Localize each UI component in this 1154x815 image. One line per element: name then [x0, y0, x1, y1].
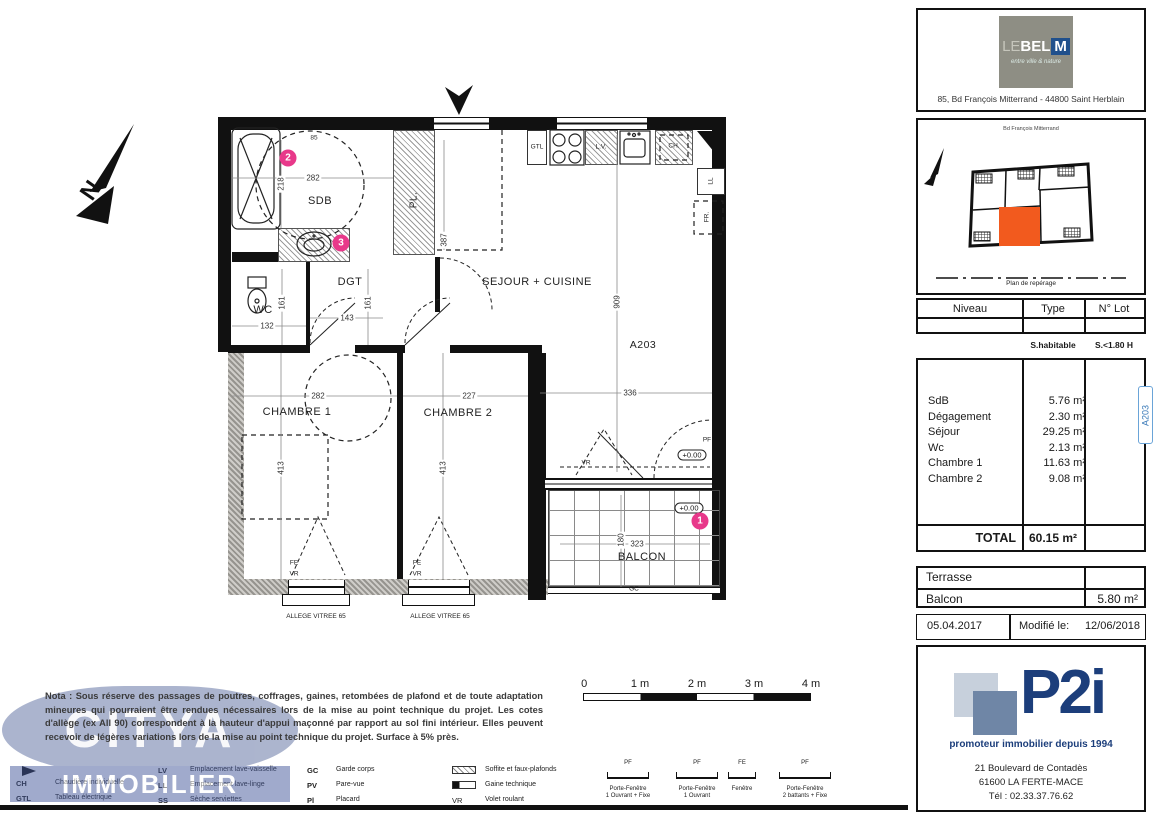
- scale-tick: 4 m: [802, 678, 820, 690]
- p2i-phone: Tél : 02.33.37.76.62: [918, 791, 1144, 802]
- soffit-hatch-icon: [452, 766, 476, 774]
- legend-label: Gaine technique: [485, 781, 536, 788]
- table-divider: [918, 588, 1144, 590]
- exterior-name: Terrasse: [926, 570, 972, 584]
- date-modified-label: Modifié le:: [1019, 620, 1069, 632]
- scale-tick: 1 m: [631, 678, 649, 690]
- washer-label: LL: [708, 177, 715, 184]
- pf-label: PF: [703, 437, 711, 444]
- legend-label: Chaudière individuelle: [55, 779, 124, 786]
- dimension-label: 282: [309, 392, 326, 401]
- p2i-address2: 61600 LA FERTE-MACE: [918, 777, 1144, 788]
- door-swings: [292, 258, 712, 575]
- siteplan-drawing: [918, 120, 1144, 293]
- legend-label: Placard: [336, 796, 360, 803]
- window-type-name: Porte-Fenêtre: [786, 786, 823, 793]
- closet-label-pl: PL.: [409, 192, 420, 209]
- entrance-arrow-icon: [441, 83, 477, 117]
- dishwasher-label: L.V.: [596, 144, 607, 151]
- legend-label: Volet roulant: [485, 796, 524, 803]
- surface-row: SdB5.76 m²: [928, 394, 1086, 410]
- duct-icon: [452, 781, 476, 789]
- legend-abbr: GC: [307, 766, 318, 775]
- room-label-chambre2: CHAMBRE 2: [424, 407, 493, 419]
- window-type-detail: 1 Ouvrant: [684, 793, 710, 800]
- surface-row: Chambre 29.08 m²: [928, 472, 1086, 488]
- siteplan-caption: Plan de repérage: [918, 280, 1144, 287]
- floor-plan: SDB WC DGT SEJOUR + CUISINE CHAMBRE 1 CH…: [218, 117, 726, 609]
- legend-abbr: CH: [16, 779, 27, 788]
- scale-bar-ruler: [583, 693, 811, 701]
- room-area: 9.08 m²: [1024, 472, 1086, 488]
- exterior-name: Balcon: [926, 592, 963, 606]
- room-label-dgt: DGT: [338, 276, 363, 288]
- table-divider: [1084, 568, 1086, 606]
- room-area: 2.30 m²: [1024, 410, 1086, 426]
- dimension-label: 387: [440, 231, 449, 248]
- dimension-label: 413: [277, 459, 286, 476]
- table-divider: [918, 317, 1144, 319]
- legend-label: Pare-vue: [336, 781, 364, 788]
- dimension-label: 218: [277, 175, 286, 192]
- exterior-area: 5.80 m²: [1097, 592, 1138, 606]
- room-area: 29.25 m²: [1024, 425, 1086, 441]
- logo-m: M: [1051, 38, 1070, 55]
- logo-le: LE: [1002, 38, 1020, 55]
- dimension-label: 132: [258, 322, 275, 331]
- brand-box: LEBELM entre ville & nature 85, Bd Franç…: [916, 8, 1146, 112]
- surface-header-low: S.<1.80 H: [1082, 340, 1146, 350]
- circled-number-2: 2: [280, 150, 297, 167]
- legend-label: Emplacement lave-linge: [190, 781, 265, 788]
- gtl-label: GTL: [531, 144, 544, 151]
- legend-label: Tableau électrique: [55, 794, 112, 801]
- window-type-name: Porte-Fenêtre: [678, 786, 715, 793]
- dimension-label: 180: [617, 531, 626, 548]
- promoter-box: P2i promoteur immobilier depuis 1994 21 …: [916, 645, 1146, 812]
- plan-linework: [218, 117, 726, 609]
- boiler-label: CH.: [668, 143, 679, 150]
- room-area: 11.63 m²: [1024, 456, 1086, 472]
- date-created: 05.04.2017: [927, 620, 982, 632]
- allege-note: ALLEGE VITREE 65: [286, 613, 346, 620]
- lot-header-niveau: Niveau: [918, 300, 1022, 317]
- legend-abbr: Pl: [307, 796, 314, 805]
- p2i-address1: 21 Boulevard de Contadès: [918, 763, 1144, 774]
- room-area: 2.13 m²: [1024, 441, 1086, 457]
- surface-row: Séjour29.25 m²: [928, 425, 1086, 441]
- vr-label: VR: [412, 571, 421, 578]
- stove-icon: [550, 130, 584, 165]
- legend-abbr: LV: [158, 766, 167, 775]
- room-label-balcon: BALCON: [618, 551, 666, 563]
- lebelm-logo: LEBELM entre ville & nature: [999, 16, 1073, 88]
- washbasin-icon: [297, 232, 331, 256]
- surface-row: Chambre 111.63 m²: [928, 456, 1086, 472]
- siteplan-box: Bd François Mitterrand: [916, 118, 1146, 295]
- room-label-wc: WC: [253, 304, 272, 316]
- room-label-chambre1: CHAMBRE 1: [263, 406, 332, 418]
- brand-address: 85, Bd François Mitterrand - 44800 Saint…: [918, 94, 1144, 104]
- circled-number-3: 3: [333, 235, 350, 252]
- lot-header-nlot: N° Lot: [1084, 300, 1144, 317]
- dates-box: 05.04.2017 Modifié le: 12/06/2018: [916, 614, 1146, 640]
- table-divider: [1009, 615, 1011, 639]
- dimension-label: 227: [460, 392, 477, 401]
- dimension-label: 909: [613, 293, 622, 310]
- legend-label: Emplacement lave-vaisselle: [190, 766, 277, 773]
- dimension-label: 323: [628, 540, 645, 549]
- window-type-name: Porte-Fenêtre: [609, 786, 646, 793]
- entry-arrow-legend-icon: [22, 766, 36, 776]
- level-marker: +0.00: [678, 450, 707, 461]
- room-name: Séjour: [928, 425, 1024, 441]
- window-glyph-icon: [779, 772, 831, 779]
- p2i-tagline: promoteur immobilier depuis 1994: [918, 739, 1144, 750]
- dimension-label: 413: [439, 459, 448, 476]
- circled-number-1: 1: [692, 513, 709, 530]
- north-compass-icon: N: [70, 118, 150, 233]
- scale-tick: 0: [581, 678, 587, 690]
- date-modified: 12/06/2018: [1085, 620, 1140, 632]
- logo-tagline: entre ville & nature: [1011, 59, 1061, 65]
- legend-label: Garde corps: [336, 766, 375, 773]
- vr-label: VR: [581, 460, 590, 467]
- window-type-name: Fenêtre: [732, 786, 753, 793]
- allege-note: ALLEGE VITREE 65: [410, 613, 470, 620]
- room-area: 5.76 m²: [1024, 394, 1086, 410]
- window-type-abbr: PF: [624, 760, 632, 767]
- room-name: Chambre 1: [928, 456, 1024, 472]
- scale-tick: 2 m: [688, 678, 706, 690]
- lot-header-type: Type: [1022, 300, 1084, 317]
- legend-label: Soffite et faux-plafonds: [485, 766, 556, 773]
- room-name: Dégagement: [928, 410, 1024, 426]
- p2i-square-dark: [973, 691, 1017, 735]
- floorplan-sheet: N: [0, 0, 1154, 815]
- turning-circles: [242, 130, 723, 519]
- window-type-abbr: PF: [801, 760, 809, 767]
- legend-abbr: VR: [452, 796, 462, 805]
- legend-abbr: LL: [158, 781, 167, 790]
- surface-rows: SdB5.76 m² Dégagement2.30 m² Séjour29.25…: [928, 394, 1086, 487]
- exterior-table: Terrasse Balcon 5.80 m²: [916, 566, 1146, 608]
- dimension-label: 85: [308, 135, 319, 142]
- fe-label: FE: [290, 560, 298, 567]
- window-glyph-icon: [676, 772, 718, 779]
- window-glyph-icon: [607, 772, 649, 779]
- room-label-sdb: SDB: [308, 195, 332, 207]
- window-glyph-icon: [728, 772, 756, 779]
- room-name: Wc: [928, 441, 1024, 457]
- fe-label: FE: [413, 560, 421, 567]
- room-name: Chambre 2: [928, 472, 1024, 488]
- dimension-label: 143: [338, 314, 355, 323]
- dimension-label: 161: [364, 294, 373, 311]
- window-type-detail: 1 Ouvrant + Fixe: [606, 793, 651, 800]
- total-row: TOTAL 60.15 m²: [918, 524, 1144, 550]
- lot-table: Niveau Type N° Lot: [916, 298, 1146, 334]
- room-name: SdB: [928, 394, 1024, 410]
- legend-abbr: PV: [307, 781, 317, 790]
- dimension-label: 336: [621, 389, 638, 398]
- scale-tick: 3 m: [745, 678, 763, 690]
- footer-rule: [0, 805, 908, 810]
- total-value: 60.15 m²: [1022, 526, 1084, 550]
- legend-label: Sèche serviettes: [190, 796, 242, 803]
- dimension-label: 282: [304, 174, 321, 183]
- room-label-sejour: SEJOUR + CUISINE: [482, 276, 592, 288]
- total-label: TOTAL: [918, 526, 1016, 550]
- window-type-abbr: PF: [693, 760, 701, 767]
- surface-row: Dégagement2.30 m²: [928, 410, 1086, 426]
- window-type-abbr: FE: [738, 760, 746, 767]
- highlighted-unit: [999, 207, 1040, 246]
- entry-door-leaf: [697, 131, 723, 163]
- gc-label: GC: [629, 586, 639, 593]
- unit-tab: A203: [1138, 386, 1153, 444]
- unit-number-label: A203: [630, 339, 657, 351]
- fridge-label: FR.: [704, 212, 711, 222]
- vr-label: VR: [289, 571, 298, 578]
- dimension-label: 161: [278, 294, 287, 311]
- surfaces-table: SdB5.76 m² Dégagement2.30 m² Séjour29.25…: [916, 358, 1146, 552]
- nota-text: Nota : Sous réserve des passages de pout…: [45, 690, 543, 744]
- legend-abbr: GTL: [16, 794, 31, 803]
- p2i-logo-text: P2i: [1020, 657, 1104, 728]
- sink-icon: [620, 131, 650, 164]
- window-type-detail: 2 battants + Fixe: [783, 793, 828, 800]
- surface-header-habitable: S.habitable: [1020, 340, 1086, 350]
- siteplan-compass-icon: [924, 148, 944, 186]
- surface-row: Wc2.13 m²: [928, 441, 1086, 457]
- legend-abbr: SS: [158, 796, 168, 805]
- door-leaves: [310, 303, 643, 478]
- logo-bel: BEL: [1020, 38, 1050, 55]
